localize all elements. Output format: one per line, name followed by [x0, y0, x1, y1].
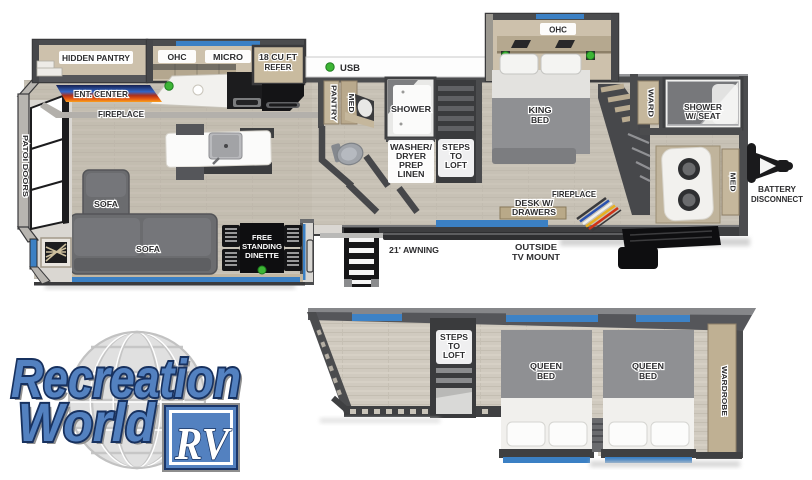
- svg-text:BATTERY: BATTERY: [758, 185, 797, 194]
- svg-text:MED: MED: [729, 173, 738, 192]
- svg-text:PREP: PREP: [399, 161, 423, 170]
- svg-text:18 CU FT: 18 CU FT: [259, 53, 297, 62]
- svg-text:STANDING: STANDING: [242, 242, 282, 251]
- svg-text:FIREPLACE: FIREPLACE: [98, 110, 145, 119]
- svg-text:TO: TO: [450, 152, 462, 161]
- svg-text:USB: USB: [340, 63, 361, 73]
- svg-text:DISCONNECT: DISCONNECT: [751, 195, 803, 204]
- svg-text:FIREPLACE: FIREPLACE: [552, 190, 597, 199]
- svg-text:BED: BED: [537, 371, 555, 381]
- svg-text:SHOWER: SHOWER: [684, 103, 722, 112]
- svg-text:RV: RV: [174, 418, 232, 469]
- svg-text:DINETTE: DINETTE: [245, 251, 279, 260]
- svg-text:LOFT: LOFT: [443, 351, 465, 360]
- svg-text:World: World: [18, 393, 156, 453]
- svg-text:HIDDEN PANTRY: HIDDEN PANTRY: [62, 54, 131, 63]
- svg-text:W/ SEAT: W/ SEAT: [686, 112, 721, 121]
- svg-text:DRAWERS: DRAWERS: [512, 208, 556, 217]
- svg-text:DRYER: DRYER: [396, 152, 426, 161]
- svg-text:OHC: OHC: [168, 53, 187, 62]
- svg-text:TO: TO: [448, 342, 460, 351]
- svg-text:PANTRY: PANTRY: [330, 85, 339, 121]
- svg-text:QUEEN: QUEEN: [530, 361, 562, 371]
- svg-text:TV MOUNT: TV MOUNT: [512, 252, 561, 262]
- svg-text:SOFA: SOFA: [136, 244, 160, 254]
- svg-text:BED: BED: [639, 371, 657, 381]
- svg-text:OUTSIDE: OUTSIDE: [515, 242, 557, 252]
- svg-text:FREE: FREE: [252, 233, 272, 242]
- svg-text:KING: KING: [529, 105, 552, 115]
- svg-text:ENT. CENTER: ENT. CENTER: [74, 90, 128, 99]
- svg-text:MICRO: MICRO: [213, 53, 243, 62]
- svg-text:QUEEN: QUEEN: [632, 361, 664, 371]
- svg-text:WASHER/: WASHER/: [390, 143, 433, 152]
- svg-text:SOFA: SOFA: [94, 199, 118, 209]
- svg-text:LINEN: LINEN: [398, 170, 425, 179]
- svg-text:OHC: OHC: [549, 26, 567, 35]
- svg-text:21' AWNING: 21' AWNING: [389, 245, 439, 255]
- svg-text:STEPS: STEPS: [440, 333, 468, 342]
- svg-text:WARDROBE: WARDROBE: [720, 366, 729, 416]
- svg-text:MED: MED: [347, 94, 356, 113]
- svg-text:LOFT: LOFT: [445, 161, 467, 170]
- svg-text:REFER: REFER: [265, 63, 292, 72]
- svg-text:WARD: WARD: [647, 89, 656, 117]
- svg-text:STEPS: STEPS: [442, 143, 470, 152]
- svg-text:SHOWER: SHOWER: [391, 105, 431, 114]
- svg-text:DESK W/: DESK W/: [515, 199, 554, 208]
- svg-text:PATOI DOORS: PATOI DOORS: [21, 135, 30, 197]
- svg-text:BED: BED: [531, 115, 549, 125]
